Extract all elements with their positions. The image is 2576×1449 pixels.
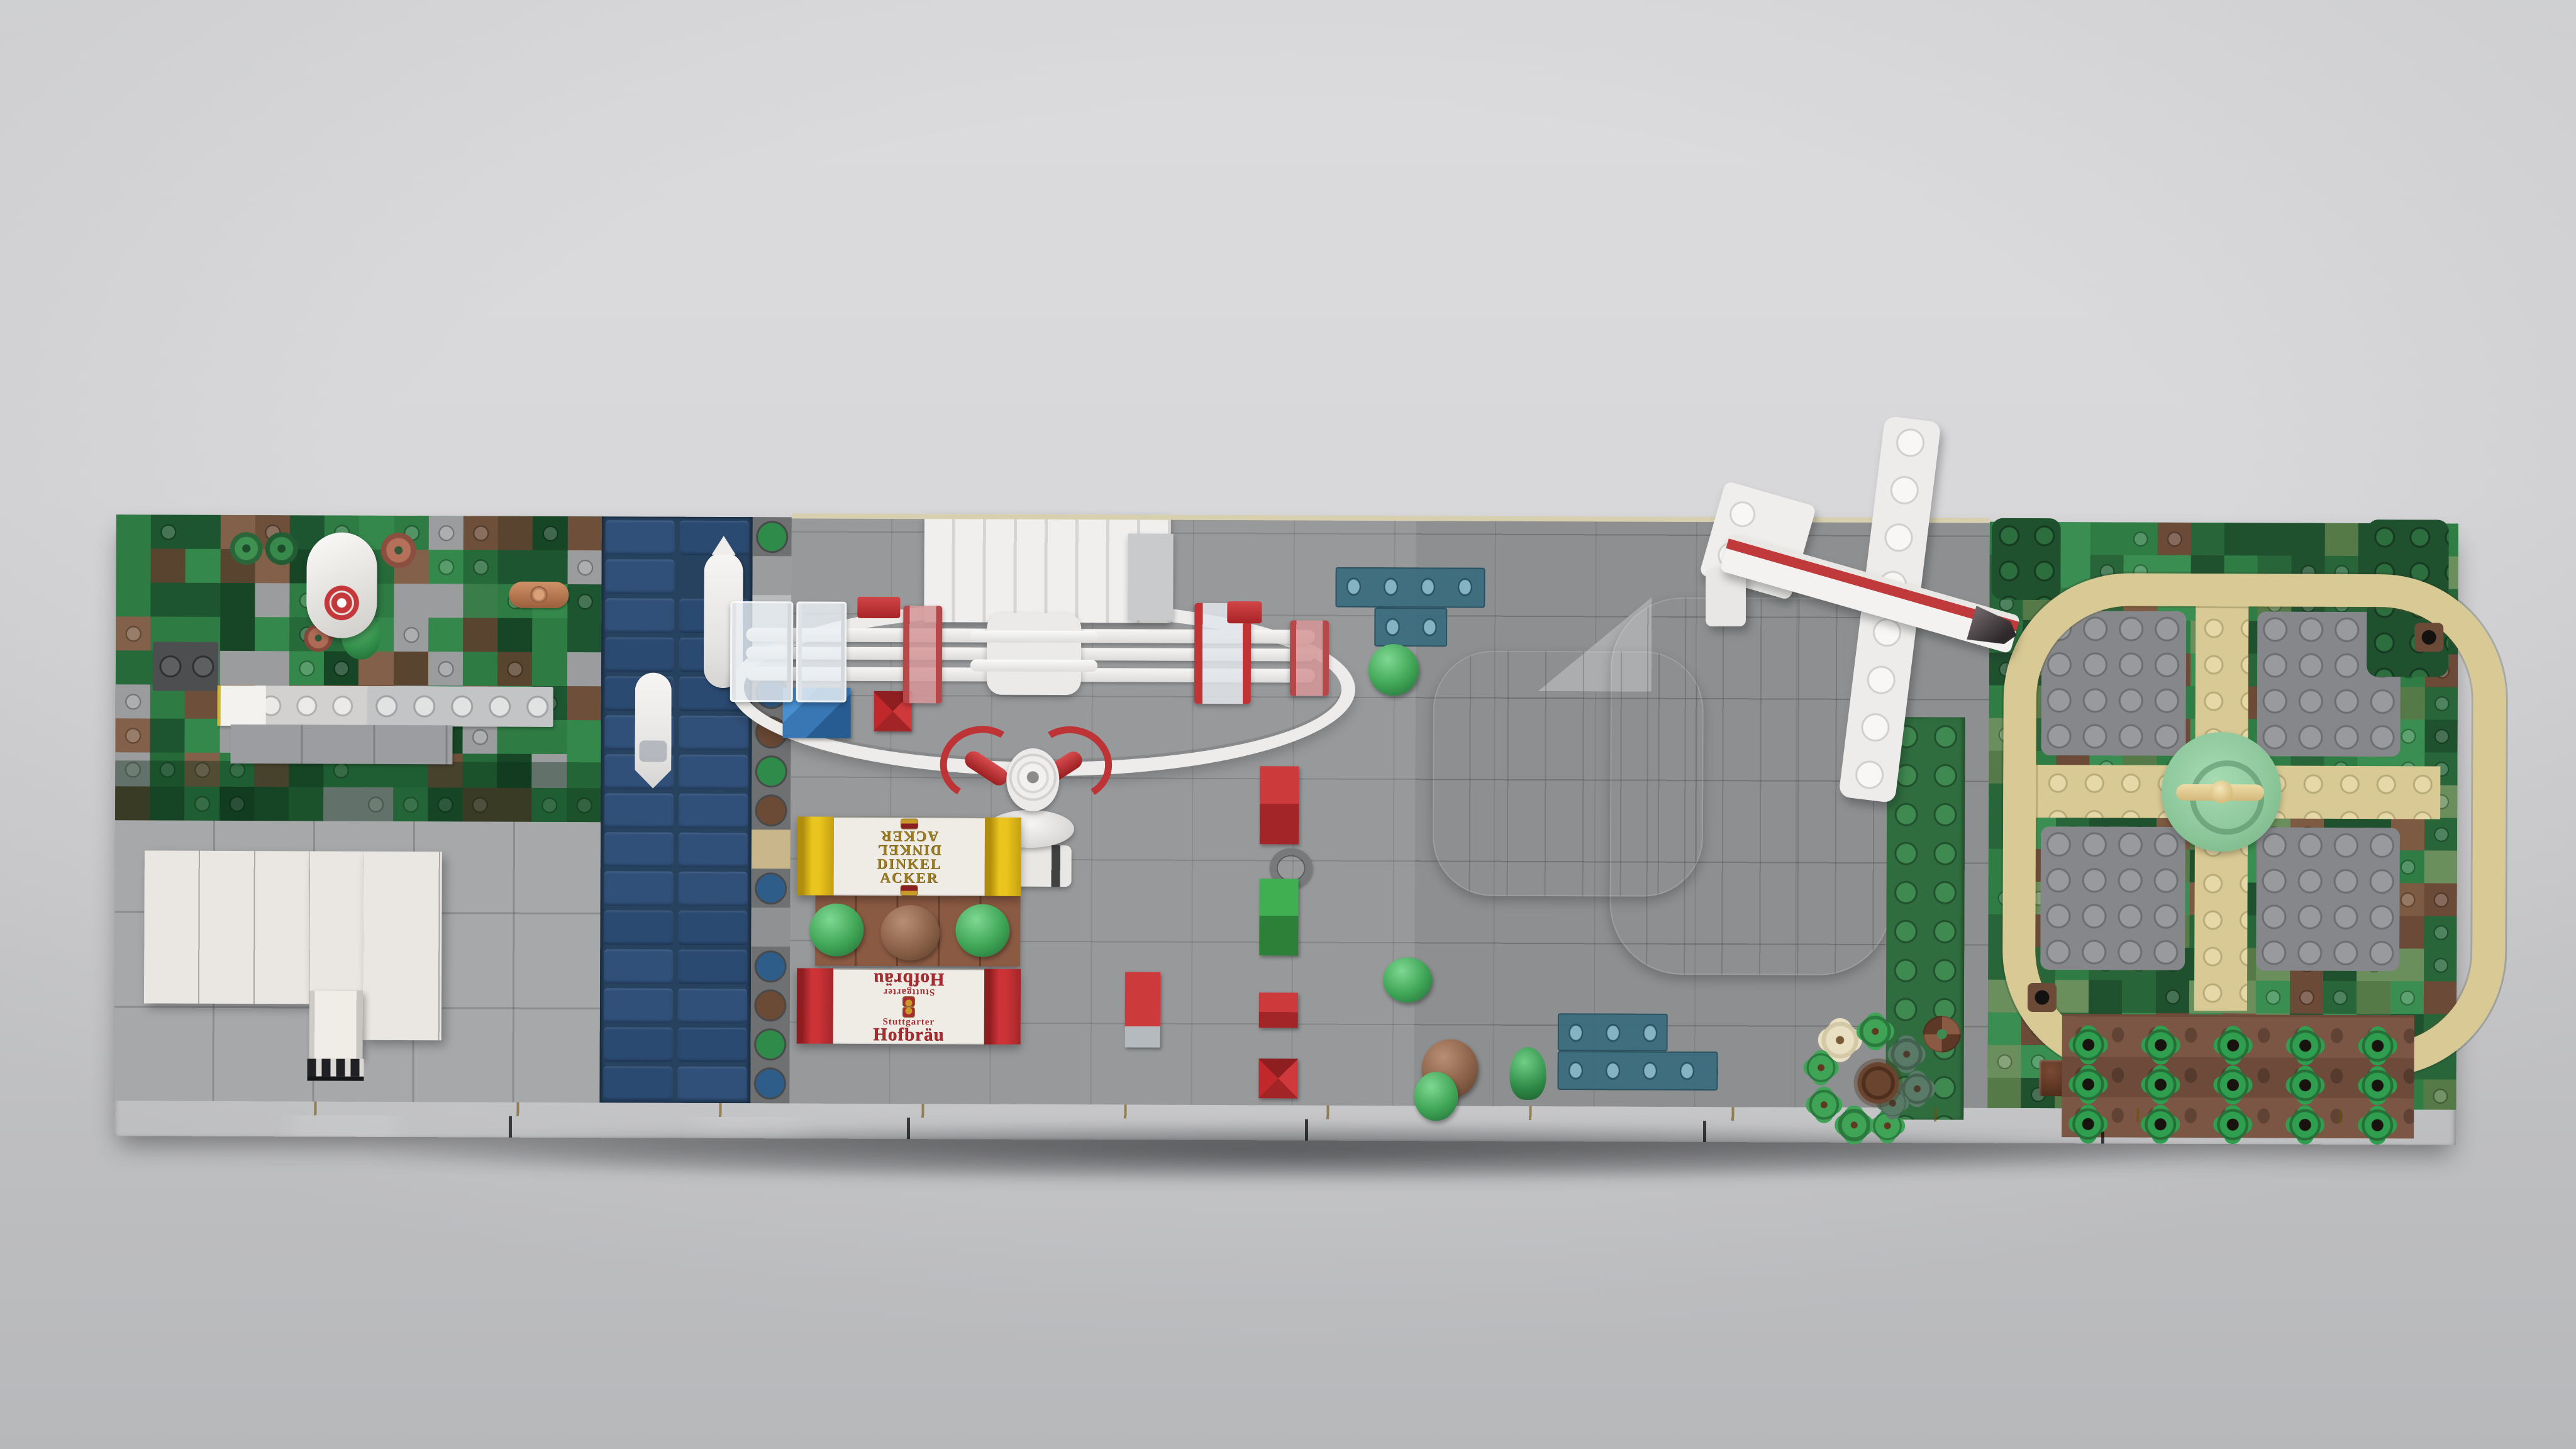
- terrain-brick: [1988, 1013, 2023, 1046]
- fountain-head: [1006, 748, 1059, 811]
- water-tile: [605, 598, 674, 633]
- water-tile: [606, 520, 675, 555]
- terrain-brick: [289, 651, 325, 686]
- terrain-brick: [2291, 523, 2326, 557]
- terrain-brick: [116, 684, 151, 719]
- red-post: [1125, 972, 1160, 1047]
- terrain-brick: [1987, 1045, 2022, 1079]
- carousel-red-cap: [1227, 601, 1262, 623]
- garden-plant: [2362, 1109, 2393, 1141]
- water-tile: [604, 988, 673, 1023]
- tree-trunk-hole: [2414, 623, 2443, 652]
- terrain-brick: [533, 550, 568, 585]
- carousel-pylon: [903, 606, 943, 703]
- water-tile: [678, 989, 747, 1023]
- cream-flower: [1822, 1022, 1858, 1058]
- tree-sphere-green: [1368, 644, 1419, 696]
- terrain-brick: [255, 583, 290, 618]
- shore-tile: [752, 752, 791, 791]
- water-tile: [678, 911, 747, 945]
- water-tile: [604, 1027, 673, 1062]
- ride-panel-block: [1128, 533, 1174, 620]
- tent-label: Hofbräu: [873, 1026, 944, 1044]
- terrain-brick: [116, 582, 151, 617]
- green-dome-bush: [1509, 1047, 1546, 1100]
- tent-roof-half: Stuttgarter Hofbräu: [833, 1007, 984, 1045]
- terrain-brick: [463, 584, 498, 618]
- terrain-brick: [2090, 522, 2125, 555]
- tent-roof-half-mirrored: DINKEL ACKER: [834, 817, 985, 857]
- garden-plant: [2362, 1030, 2394, 1062]
- terrain-brick: [150, 582, 186, 617]
- shore-tile: [751, 908, 790, 947]
- brown-pinwheel-flower: [1923, 1016, 1961, 1052]
- tent-roof-canvas: DINKEL ACKER DINKEL ACKER: [834, 817, 985, 896]
- tree-trunk-hole: [2028, 983, 2057, 1012]
- stone-wall-lower: [230, 724, 452, 764]
- terrain-brick: [150, 718, 186, 753]
- terrain-brick: [393, 652, 428, 686]
- carousel-red-cap: [857, 597, 900, 618]
- green-crate: [1259, 879, 1298, 955]
- garden-plant: [2072, 1108, 2104, 1140]
- boat-south: [635, 672, 672, 788]
- render-canvas: DINKEL ACKER DINKEL ACKER Stuttga: [0, 0, 2576, 1449]
- garden-plant: [2145, 1069, 2176, 1101]
- water-tile: [679, 833, 748, 867]
- carousel-pylon: [1290, 620, 1329, 696]
- water-tile: [604, 793, 674, 828]
- terrain-brick: [567, 550, 602, 585]
- log-piece: [509, 582, 569, 608]
- terrain-brick: [2258, 523, 2292, 556]
- park-center-stud: [2210, 780, 2233, 803]
- green-flower: [1860, 1016, 1891, 1047]
- shore-tile: [751, 985, 790, 1025]
- water-tile: [679, 716, 748, 750]
- shore-tile: [752, 791, 791, 830]
- terrain-brick: [186, 583, 221, 618]
- building-roof-main: [144, 850, 310, 1004]
- water-tile: [604, 871, 674, 906]
- terrain-brick: [567, 686, 602, 721]
- terrain-brick: [428, 618, 464, 652]
- terrain-brick: [464, 516, 499, 550]
- terrain-brick: [498, 516, 533, 551]
- terrain-brick: [151, 548, 186, 583]
- entrance-gate-teeth: [307, 1058, 364, 1080]
- terrain-brick: [186, 515, 221, 550]
- terrain-brick: [533, 516, 568, 551]
- terrain-brick: [1987, 1078, 2021, 1110]
- shore-tile: [752, 830, 791, 869]
- green-flower: [1838, 1109, 1870, 1141]
- terrain-brick: [220, 583, 255, 618]
- garden-plant: [2218, 1030, 2249, 1061]
- terrain-brick: [394, 584, 429, 618]
- red-crate-small: [1259, 992, 1298, 1028]
- terrain-brick: [497, 618, 533, 653]
- sage-flower: [1902, 1074, 1932, 1104]
- green-flower: [1806, 1053, 1835, 1082]
- water-tile: [603, 1066, 672, 1101]
- tent-roof-half: DINKEL ACKER: [834, 857, 985, 896]
- water-tile: [604, 832, 674, 867]
- tent-roof-end-yellow: [985, 818, 1021, 896]
- terrain-brick: [255, 617, 290, 652]
- terrain-brick: [116, 514, 152, 549]
- hofbraeu-crest-icon: [903, 1008, 914, 1017]
- terrain-brick: [2124, 523, 2158, 556]
- terrain-brick: [116, 548, 151, 583]
- airplane: [1706, 410, 2064, 819]
- flower-tile: [230, 532, 263, 565]
- terrain-brick: [185, 719, 220, 753]
- terrain-brick: [151, 514, 186, 549]
- terrain-brick: [428, 584, 464, 618]
- terrain-brick: [220, 617, 255, 652]
- terrain-brick: [255, 651, 290, 686]
- tent-roof-canvas: Stuttgarter Hofbräu Stuttgarter Hofbräu: [833, 969, 984, 1045]
- red-pyramid: [1258, 1058, 1297, 1098]
- forest-dark-band: [115, 760, 601, 822]
- terrain-brick: [428, 516, 464, 550]
- terrain-brick: [532, 652, 567, 687]
- lego-fairground-diorama: DINKEL ACKER DINKEL ACKER Stuttga: [114, 514, 2458, 1145]
- terrain-brick: [2224, 523, 2258, 556]
- tree-sphere-green: [809, 904, 863, 957]
- teal-pond-tiles: [1335, 567, 1485, 608]
- tree-trunk-top: [1857, 1062, 1899, 1104]
- garden-plant: [2072, 1069, 2104, 1100]
- water-tile: [678, 1028, 747, 1062]
- flower-tile: [265, 532, 298, 565]
- terrain-brick: [567, 720, 602, 755]
- water-tile: [677, 1067, 747, 1101]
- garden-plant: [2145, 1030, 2177, 1061]
- terrain-brick: [2423, 1079, 2458, 1109]
- tower-red-ring: [323, 584, 360, 623]
- tent-roof-end-yellow: [797, 816, 834, 895]
- dinkelacker-crest-icon: [901, 885, 918, 895]
- terrain-brick: [498, 550, 533, 585]
- red-crate: [1260, 766, 1299, 844]
- garden-plant: [2362, 1070, 2393, 1101]
- shore-tile: [753, 517, 792, 557]
- green-flower: [1873, 1111, 1902, 1140]
- terrain-brick: [428, 550, 464, 584]
- terrain-brick: [567, 584, 602, 619]
- sage-flower: [1891, 1038, 1923, 1070]
- terrain-brick: [463, 618, 498, 652]
- beer-tent-dinkelacker-roof: DINKEL ACKER DINKEL ACKER: [797, 816, 1021, 896]
- carousel-pylon: [730, 601, 794, 702]
- water-tile: [679, 794, 748, 828]
- dinkelacker-crest-icon: [901, 819, 918, 828]
- garden-plant: [2217, 1109, 2248, 1140]
- terrain-brick: [219, 651, 255, 686]
- terrain-brick: [428, 652, 464, 686]
- building-roof-center: [309, 851, 364, 991]
- airplane-tail-block: [1706, 569, 1746, 626]
- dark-gray-brick: [153, 642, 218, 691]
- garden-plant: [2289, 1109, 2321, 1141]
- building-roof-right: [363, 852, 442, 1040]
- tent-label: ACKER: [880, 829, 938, 843]
- water-tile: [604, 949, 673, 984]
- tent-label: ACKER: [880, 871, 938, 885]
- water-tile: [605, 637, 674, 672]
- tent-roof-end-red: [984, 969, 1021, 1045]
- water-tile: [679, 755, 748, 789]
- garden-plant: [2073, 1029, 2104, 1060]
- tent-label: DINKEL: [877, 857, 941, 871]
- tent-label: DINKEL: [877, 843, 941, 857]
- terrain-brick: [2325, 523, 2360, 557]
- water-tile: [678, 950, 747, 984]
- tree-sphere-green: [955, 904, 1009, 957]
- water-tile: [679, 872, 748, 906]
- terrain-brick: [463, 652, 498, 686]
- shore-tile: [752, 869, 791, 908]
- tree-sphere-brown: [880, 905, 940, 960]
- carousel-pylon: [796, 601, 847, 702]
- building-entrance: [309, 991, 363, 1058]
- tent-label: Hofbräu: [873, 970, 944, 987]
- beer-tent-hofbraeu-roof: Stuttgarter Hofbräu Stuttgarter Hofbräu: [797, 968, 1021, 1044]
- carousel-hub: [987, 613, 1081, 696]
- shore-tile: [751, 1024, 790, 1064]
- terrain-brick: [116, 616, 151, 651]
- tent-roof-end-red: [797, 968, 833, 1043]
- teal-pond-tiles: [1558, 1013, 1668, 1052]
- hofbraeu-crest-icon: [903, 997, 914, 1006]
- teal-pond-tiles: [1557, 1051, 1718, 1091]
- terrain-brick: [115, 718, 150, 753]
- garden-plant: [2145, 1109, 2176, 1140]
- shore-tile: [750, 1064, 789, 1104]
- terrain-brick: [567, 516, 602, 551]
- terrain-brick: [2157, 523, 2192, 556]
- terrain-brick: [186, 549, 221, 584]
- flower-tree: [1810, 1016, 1936, 1142]
- shore-tile: [752, 556, 791, 596]
- terrain-brick: [567, 652, 601, 687]
- tent-roof-half-mirrored: Stuttgarter Hofbräu: [833, 969, 984, 1008]
- terrain-brick: [394, 618, 429, 652]
- terrain-brick: [567, 618, 602, 653]
- terrain-brick: [463, 550, 498, 584]
- tree-sphere-green: [1383, 957, 1432, 1002]
- garden-plant: [2217, 1069, 2248, 1101]
- terrain-brick: [532, 618, 567, 653]
- teal-pond-tiles: [1374, 608, 1447, 647]
- green-flower: [1809, 1090, 1839, 1120]
- terrain-brick: [116, 650, 151, 685]
- garden-plant: [2290, 1030, 2321, 1062]
- stone-wall-studs: [368, 686, 553, 727]
- flower-tile: [381, 533, 416, 568]
- terrain-brick: [497, 652, 533, 687]
- garden-plant: [2289, 1070, 2321, 1101]
- shore-tile: [751, 947, 790, 986]
- water-tile: [605, 559, 674, 594]
- water-tile: [604, 910, 673, 945]
- terrain-brick: [2190, 523, 2225, 556]
